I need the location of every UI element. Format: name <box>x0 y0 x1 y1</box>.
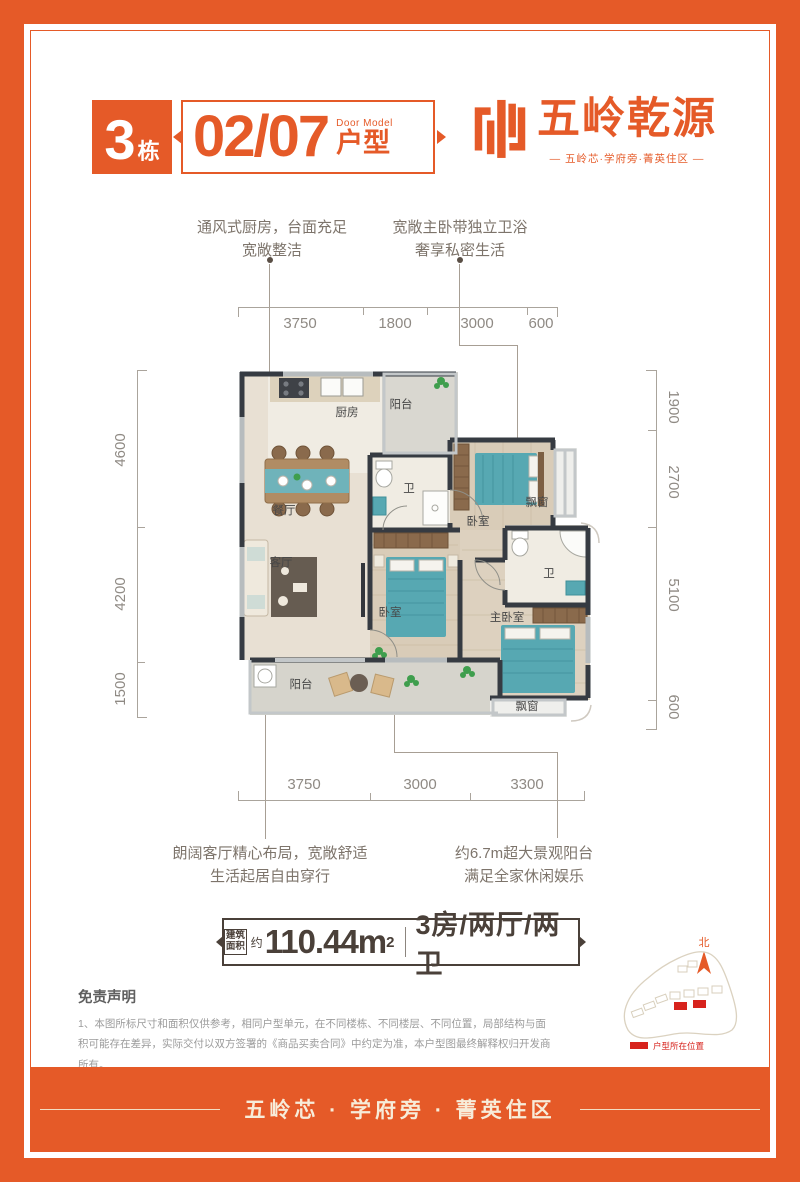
arrow-right-icon <box>579 936 586 948</box>
area-superscript: 2 <box>386 934 394 951</box>
poster-page: 3 栋 02/07 Door Model 户型 五 <box>0 0 800 1182</box>
dim-label: 3000 <box>403 776 436 793</box>
dim-tick <box>427 307 428 315</box>
unit-labels: Door Model 户型 <box>336 118 393 157</box>
dim-label: 3750 <box>287 776 320 793</box>
room-label-bath-master: 卫 <box>543 568 555 580</box>
callout-living: 朗阔客厅精心布局，宽敞舒适 生活起居自由穿行 <box>145 842 395 888</box>
dim-tick <box>238 791 239 801</box>
dim-tick <box>137 370 147 371</box>
highlighted-buildings <box>674 1000 706 1010</box>
content-panel: 3 栋 02/07 Door Model 户型 五 <box>24 24 776 1158</box>
dim-tick <box>646 729 656 730</box>
dim-tick <box>137 717 147 718</box>
site-plan: 北 户型所在位置 <box>600 930 770 1065</box>
building-number: 3 <box>104 112 135 168</box>
building-suffix: 栋 <box>138 137 160 168</box>
brand-tagline: — 五岭芯·学府旁·菁英住区 — <box>550 151 705 166</box>
callout-master: 宽敞主卧带独立卫浴 奢享私密生活 <box>335 216 585 262</box>
footer-band: 五岭芯 · 学府旁 · 菁英住区 <box>31 1067 769 1151</box>
room-label-bedroom-mid: 卧室 <box>379 605 402 619</box>
dim-tick <box>648 700 656 701</box>
dim-label: 2700 <box>665 465 682 498</box>
unit-code: 02/07 <box>193 108 328 166</box>
unit-title-box: 02/07 Door Model 户型 <box>181 100 435 174</box>
dim-label: 4600 <box>112 433 129 466</box>
dim-label: 3300 <box>510 776 543 793</box>
door-model-cn: 户型 <box>336 130 390 157</box>
connector-dot <box>267 257 273 263</box>
dim-tick <box>137 662 145 663</box>
area-label: 建筑面积 <box>224 929 247 955</box>
divider <box>405 927 406 957</box>
callout-balcony-line1: 约6.7m超大景观阳台 <box>399 842 649 865</box>
dim-label: 3750 <box>283 315 316 332</box>
dim-label: 4200 <box>112 577 129 610</box>
compass-north-label: 北 <box>699 936 710 949</box>
dim-tick <box>648 430 656 431</box>
arrow-left-icon <box>216 936 223 948</box>
dim-line <box>238 307 558 308</box>
callout-balcony-line2: 满足全家休闲娱乐 <box>399 865 649 888</box>
dim-line <box>137 370 138 718</box>
dim-tick <box>557 307 558 317</box>
connector-line <box>459 345 518 346</box>
room-label-dining: 餐厅 <box>273 503 296 517</box>
dim-label: 1500 <box>112 672 129 705</box>
footer-tagline: 五岭芯 · 学府旁 · 菁英住区 <box>244 1094 555 1124</box>
compass-needle-icon <box>697 951 711 974</box>
dim-tick <box>137 527 145 528</box>
room-label-living: 客厅 <box>270 555 293 569</box>
floor-plan: 厨房 阳台 卫 卧室 飘窗 餐厅 客厅 卧室 主卧室 卫 阳台 飘窗 <box>235 365 635 735</box>
callout-balcony: 约6.7m超大景观阳台 满足全家休闲娱乐 <box>399 842 649 888</box>
dim-tick <box>584 791 585 801</box>
dim-label: 600 <box>528 315 553 332</box>
layout-summary: 3房/两厅/两卫 <box>415 903 578 981</box>
footer-line-left <box>40 1109 220 1110</box>
brand-logo: 五岭乾源 — 五岭芯·学府旁·菁英住区 — <box>471 92 717 166</box>
dim-line <box>238 800 585 801</box>
brand-logo-icon <box>471 96 529 160</box>
building-badge: 3 栋 <box>92 100 172 174</box>
area-approx: 约 <box>251 934 263 951</box>
connector-dot <box>457 257 463 263</box>
dim-label: 1800 <box>378 315 411 332</box>
disclaimer-title: 免责声明 <box>78 986 556 1007</box>
dim-tick <box>363 307 364 315</box>
dim-tick <box>648 527 656 528</box>
callout-master-line1: 宽敞主卧带独立卫浴 <box>335 216 585 239</box>
dim-label: 3000 <box>460 315 493 332</box>
legend-swatch <box>630 1042 648 1049</box>
connector-line <box>557 752 558 838</box>
room-label-master: 主卧室 <box>490 610 525 624</box>
room-label-balcony-top: 阳台 <box>390 397 413 411</box>
room-label-balcony-bottom: 阳台 <box>290 677 313 691</box>
legend-label: 户型所在位置 <box>653 1041 705 1051</box>
brand-name: 五岭乾源 <box>537 92 717 148</box>
callout-living-line1: 朗阔客厅精心布局，宽敞舒适 <box>145 842 395 865</box>
area-value: 110.44m <box>265 923 386 961</box>
connector-line <box>394 752 557 753</box>
room-label-bay-bottom: 飘窗 <box>516 699 539 713</box>
dim-tick <box>527 307 528 315</box>
dim-tick <box>238 307 239 317</box>
dim-label: 600 <box>665 694 682 719</box>
connector-line <box>459 264 460 346</box>
room-label-bath-top: 卫 <box>403 483 415 495</box>
room-label-kitchen: 厨房 <box>336 406 359 419</box>
arrow-right-icon <box>437 130 446 144</box>
dim-tick <box>470 793 471 801</box>
dim-tick <box>370 793 371 801</box>
dim-label: 5100 <box>665 578 682 611</box>
dim-line <box>656 370 657 730</box>
area-summary-box: 建筑面积 约 110.44m 2 3房/两厅/两卫 <box>222 918 580 966</box>
room-label-bedroom-top: 卧室 <box>467 514 490 528</box>
dim-tick <box>646 370 656 371</box>
door-model-en: Door Model <box>336 118 393 129</box>
room-label-bay-right: 飘窗 <box>526 495 549 509</box>
callout-living-line2: 生活起居自由穿行 <box>145 865 395 888</box>
footer-line-right <box>580 1109 760 1110</box>
dim-label: 1900 <box>665 390 682 423</box>
